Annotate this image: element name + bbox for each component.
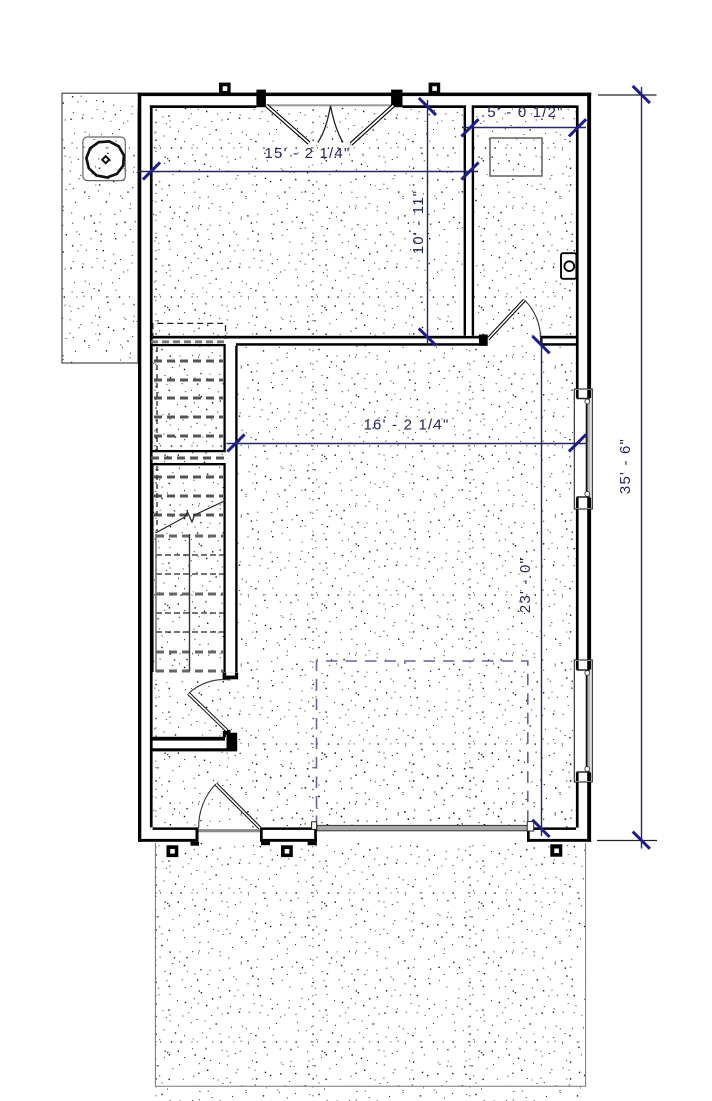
svg-text:10' - 11": 10' - 11" [410, 190, 427, 255]
svg-text:23' - 0": 23' - 0" [517, 557, 534, 613]
svg-text:15' - 2 1/4": 15' - 2 1/4" [265, 145, 351, 162]
svg-text:5' - 0 1/2": 5' - 0 1/2" [487, 104, 563, 121]
svg-text:35' - 6": 35' - 6" [617, 438, 634, 494]
svg-text:16' - 2 1/4": 16' - 2 1/4" [364, 417, 450, 434]
